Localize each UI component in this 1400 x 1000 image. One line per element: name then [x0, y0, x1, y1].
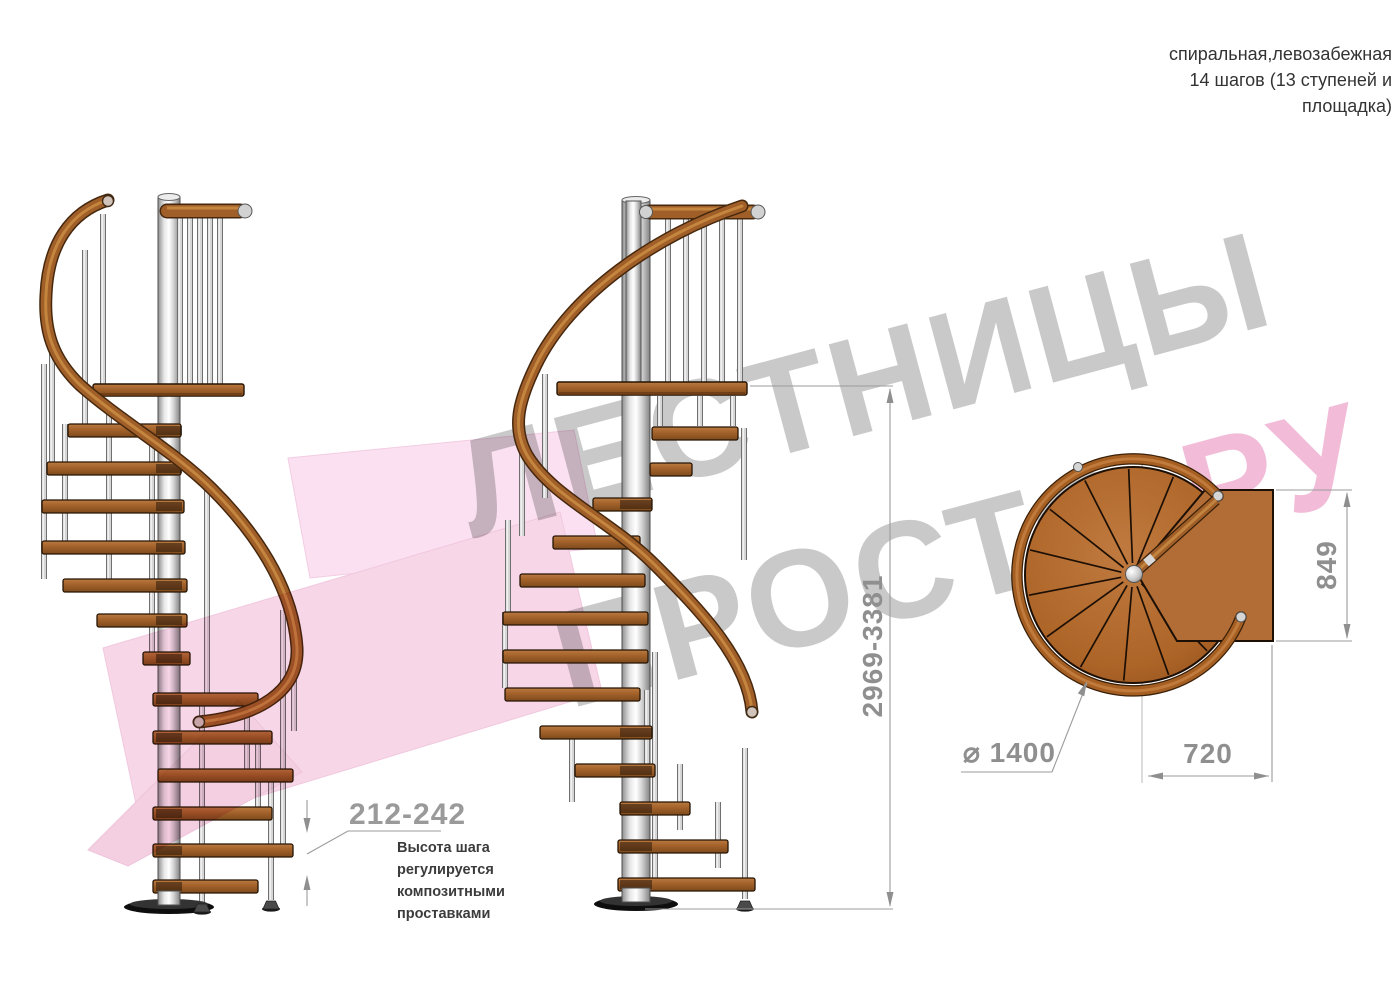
- handrail-end-cap: [103, 196, 114, 207]
- platform-width-dimension: 720: [1183, 738, 1233, 769]
- handrail-joint-cap: [1074, 463, 1083, 472]
- step: [503, 612, 648, 625]
- pole-base: [622, 888, 650, 902]
- step: [520, 574, 645, 587]
- step-pole-collar: [620, 766, 652, 775]
- diameter-dimension: ⌀ 1400: [963, 737, 1056, 768]
- step-pole-collar: [156, 882, 182, 891]
- header-line-3: площадка): [1302, 96, 1392, 116]
- platform-edge: [559, 392, 745, 395]
- platform-edge: [95, 393, 242, 396]
- step: [650, 463, 692, 476]
- rail-end-cap: [640, 206, 653, 219]
- step-height-dimension: 212-242: [349, 798, 466, 831]
- step: [652, 427, 738, 440]
- rail-end-cap: [238, 204, 252, 218]
- pole-base: [158, 891, 180, 905]
- spiral-staircase-drawing: ЛЕСТНИЦЫ ПРОСТО .РУ: [0, 0, 1400, 1000]
- step-pole-collar: [620, 842, 652, 851]
- pole-top-cap: [158, 194, 180, 201]
- note-line-1: Высота шага: [397, 840, 491, 856]
- step-pole-collar: [156, 581, 182, 590]
- total-height-dimension: 2969-3381: [857, 575, 888, 718]
- top-view: [1017, 455, 1273, 783]
- step-pole-collar: [156, 616, 182, 625]
- platform-depth-dimension: 849: [1311, 540, 1342, 590]
- newel-post: [626, 201, 641, 382]
- step: [505, 688, 640, 701]
- foot-pad: [263, 901, 279, 909]
- center-pole-ball: [1126, 566, 1143, 583]
- note-line-2: регулируется: [397, 862, 494, 878]
- handrail-end-cap: [747, 707, 758, 718]
- note-line-3: композитными: [397, 884, 505, 900]
- step-pole-collar: [620, 804, 652, 813]
- step: [503, 650, 648, 663]
- drawing-canvas: ЛЕСТНИЦЫ ПРОСТО .РУ: [0, 0, 1400, 1000]
- step-pole-collar: [620, 728, 652, 737]
- step-pole-collar: [156, 426, 182, 435]
- header-line-2: 14 шагов (13 ступеней и: [1190, 70, 1393, 90]
- note-line-4: проставками: [397, 906, 490, 922]
- header-line-1: спиральная,левозабежная: [1169, 44, 1392, 64]
- step-pole-collar: [156, 543, 182, 552]
- drawing-title: спиральная,левозабежная 14 шагов (13 сту…: [1169, 44, 1392, 116]
- rail-end-cap: [751, 205, 765, 219]
- handrail-end-cap: [1236, 612, 1246, 622]
- step-pole-collar: [620, 500, 652, 509]
- step-pole-collar: [156, 502, 182, 511]
- foot-pad: [737, 901, 753, 909]
